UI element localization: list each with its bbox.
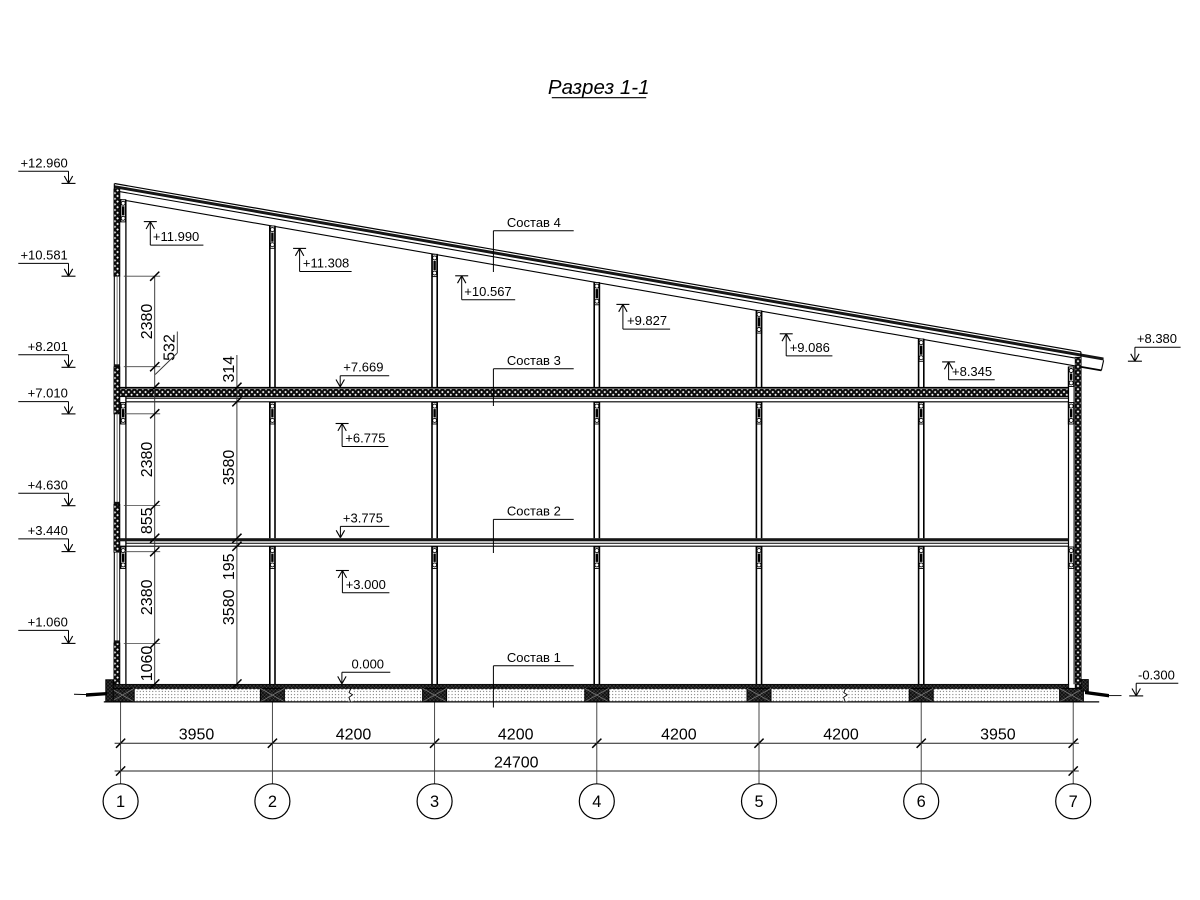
- svg-text:Состав 1: Состав 1: [507, 650, 561, 665]
- svg-text:3580: 3580: [221, 450, 238, 486]
- svg-text:2380: 2380: [139, 304, 156, 340]
- svg-text:24700: 24700: [494, 754, 539, 771]
- svg-text:+8.201: +8.201: [28, 339, 68, 354]
- svg-text:-0.300: -0.300: [1138, 667, 1175, 682]
- svg-text:Состав 4: Состав 4: [507, 215, 561, 230]
- svg-text:1060: 1060: [139, 646, 156, 682]
- svg-text:0.000: 0.000: [352, 656, 385, 671]
- svg-text:Разрез 1-1: Разрез 1-1: [548, 76, 650, 99]
- svg-text:Состав 2: Состав 2: [507, 504, 561, 519]
- svg-text:3950: 3950: [179, 726, 215, 743]
- svg-text:314: 314: [221, 356, 238, 383]
- svg-text:+6.775: +6.775: [345, 431, 385, 446]
- svg-text:+11.308: +11.308: [303, 256, 349, 271]
- svg-text:6: 6: [917, 793, 926, 811]
- svg-text:+3.440: +3.440: [28, 523, 68, 538]
- svg-text:+3.000: +3.000: [346, 577, 386, 592]
- svg-text:+8.380: +8.380: [1137, 331, 1177, 346]
- svg-text:4200: 4200: [823, 726, 859, 743]
- svg-text:+9.827: +9.827: [627, 313, 667, 328]
- svg-text:+10.581: +10.581: [20, 247, 67, 262]
- svg-text:+12.960: +12.960: [20, 155, 67, 170]
- svg-text:2380: 2380: [139, 442, 156, 478]
- svg-text:2380: 2380: [139, 579, 156, 615]
- svg-text:2: 2: [268, 793, 277, 811]
- svg-text:+7.669: +7.669: [343, 360, 383, 375]
- svg-text:4200: 4200: [498, 726, 534, 743]
- svg-text:+1.060: +1.060: [28, 614, 68, 629]
- svg-text:+8.345: +8.345: [952, 364, 992, 379]
- svg-text:3580: 3580: [221, 589, 238, 625]
- svg-text:195: 195: [221, 553, 238, 580]
- svg-text:5: 5: [754, 793, 763, 811]
- svg-text:3950: 3950: [980, 726, 1016, 743]
- svg-text:4: 4: [592, 793, 601, 811]
- svg-text:+3.775: +3.775: [343, 510, 383, 525]
- svg-text:+11.990: +11.990: [153, 229, 199, 244]
- svg-text:+10.567: +10.567: [464, 284, 511, 299]
- svg-text:1: 1: [116, 793, 125, 811]
- svg-text:532: 532: [162, 334, 179, 361]
- svg-text:4200: 4200: [661, 726, 697, 743]
- svg-text:+9.086: +9.086: [790, 340, 830, 355]
- svg-text:+7.010: +7.010: [28, 386, 68, 401]
- svg-text:7: 7: [1069, 793, 1078, 811]
- svg-text:4200: 4200: [336, 726, 372, 743]
- svg-text:855: 855: [139, 507, 156, 534]
- svg-text:Состав 3: Состав 3: [507, 353, 561, 368]
- svg-text:+4.630: +4.630: [28, 477, 68, 492]
- svg-text:3: 3: [430, 793, 439, 811]
